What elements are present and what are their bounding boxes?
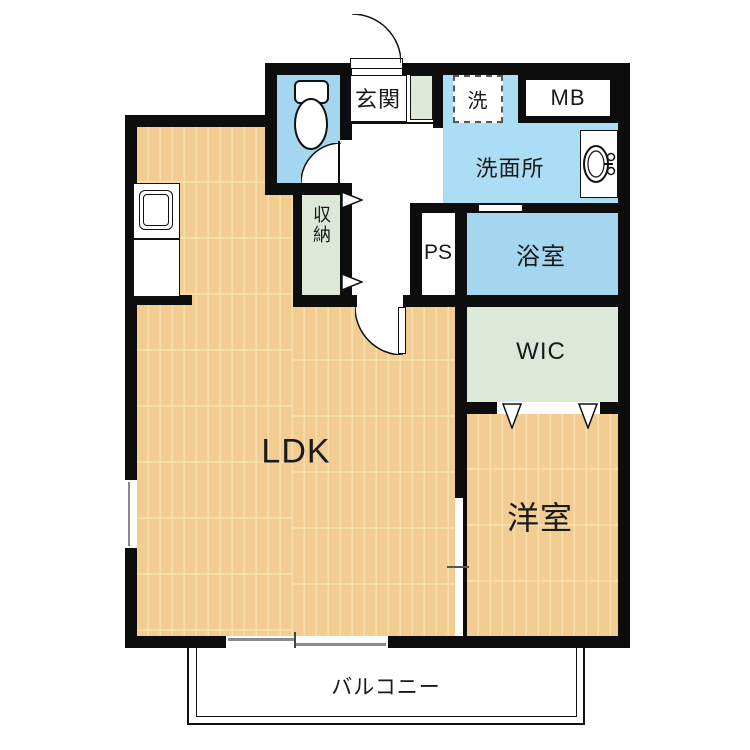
window-pane [228, 638, 296, 641]
kitchen-sink-icon [143, 194, 169, 226]
room-label-meter-box: MB [551, 85, 586, 111]
room-label-bathroom: 浴室 [516, 237, 566, 272]
wall [125, 115, 277, 127]
hall-door-swing-icon [355, 307, 403, 355]
bathroom-door [478, 204, 523, 212]
wic-door-icon [502, 403, 522, 429]
entrance-step-line [345, 122, 433, 124]
toilet-door-leaf [338, 141, 340, 183]
wall [410, 203, 422, 307]
room-label-balcony: バルコニー [331, 671, 441, 701]
wic-door-icon [578, 403, 598, 429]
toilet-icon [289, 79, 333, 153]
window-pane [296, 643, 386, 646]
storage-door-icon [341, 191, 363, 209]
room-label-pipe-space: PS [424, 241, 452, 265]
wall [618, 63, 630, 648]
room-label-wic: WIC [516, 338, 566, 366]
hall-door-leaf [398, 307, 406, 354]
room-label-western-room: 洋室 [507, 493, 573, 539]
room-label-entrance: 玄関 [355, 82, 401, 114]
room-label-washroom: 洗面所 [475, 151, 544, 183]
room-label-ldk: LDK [261, 433, 330, 472]
vanity-sink-icon [582, 132, 616, 196]
kitchen-counter-line [134, 238, 179, 240]
wall [265, 63, 277, 195]
wall [293, 183, 302, 307]
room-label-storage: 収納 [308, 205, 334, 245]
entrance-door-swing-icon [352, 14, 401, 63]
wall [265, 183, 352, 195]
toilet-door-opening [340, 140, 352, 183]
room-label-laundry: 洗 [468, 85, 489, 114]
shoe-cabinet [410, 75, 433, 120]
window-pane [128, 482, 130, 546]
floor-plan: 玄関 洗 MB 洗面所 PS 浴室 収納 WIC LDK 洋室 バルコニー [0, 0, 750, 750]
ldk-side-window [125, 480, 137, 548]
storage-door-icon [341, 273, 363, 291]
wall [433, 63, 443, 128]
sliding-door-tick [447, 566, 469, 568]
hall-door-opening [357, 295, 403, 307]
